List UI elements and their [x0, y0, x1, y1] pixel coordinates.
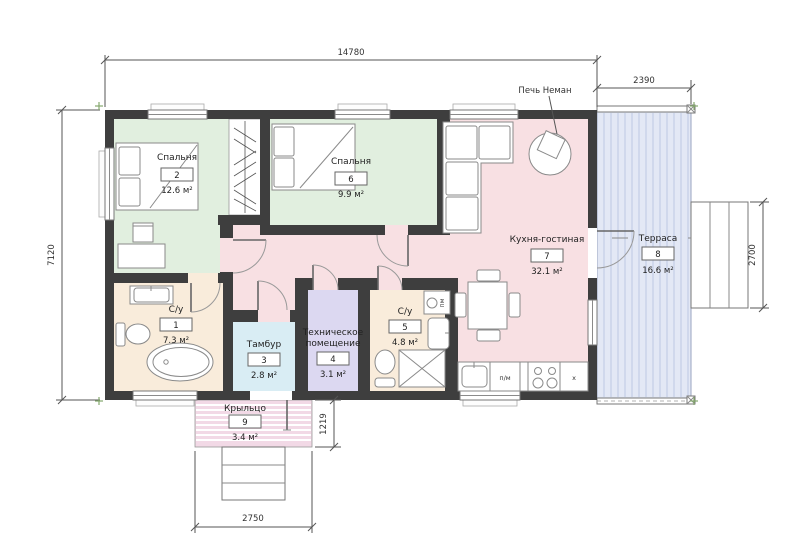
sink-small [428, 318, 449, 349]
svg-text:16.6 м²: 16.6 м² [642, 266, 673, 276]
svg-text:Крыльцо: Крыльцо [224, 404, 266, 414]
window-bedroom2-top [148, 104, 207, 119]
svg-text:14780: 14780 [337, 48, 364, 58]
washing-machine: пм [424, 291, 450, 314]
bathtub [147, 343, 213, 381]
washing-machine-label: пм [438, 298, 446, 307]
dim-terrace-width: 2390 [593, 76, 695, 104]
label-tambour-3: Тамбур 3 2.8 м² [246, 340, 282, 381]
dim-terrace-steps-depth: 2700 [748, 198, 769, 312]
stove-label: Печь Неман [518, 86, 571, 96]
svg-text:7: 7 [544, 252, 549, 262]
window-kitchen-top [450, 104, 518, 119]
dim-overall-width: 14780 [101, 48, 601, 107]
svg-text:Кухня-гостиная: Кухня-гостиная [510, 235, 585, 245]
svg-text:Тамбур: Тамбур [246, 340, 282, 350]
svg-text:4: 4 [330, 355, 335, 365]
dim-overall-depth: 7120 [47, 106, 100, 404]
svg-text:2750: 2750 [242, 514, 264, 524]
svg-text:Техническое: Техническое [302, 328, 364, 338]
window-bedroom6-top [335, 104, 390, 119]
svg-text:7120: 7120 [47, 244, 57, 266]
svg-text:1219: 1219 [319, 413, 329, 435]
floor-plan-drawing: п/м х [0, 0, 800, 552]
svg-text:Спальня: Спальня [331, 157, 371, 167]
wall-wardrobe-bottom [218, 215, 266, 225]
dim-porch-depth: 1219 [315, 396, 341, 451]
toilet [116, 323, 150, 346]
wall-wardrobe-bedroom6 [260, 110, 270, 225]
svg-text:4.8 м²: 4.8 м² [392, 338, 418, 348]
svg-text:2700: 2700 [748, 244, 758, 266]
label-bedroom-2: Спальня 2 12.6 м² [157, 153, 197, 196]
svg-text:Спальня: Спальня [157, 153, 197, 163]
svg-text:5: 5 [402, 323, 407, 333]
svg-text:3.4 м²: 3.4 м² [232, 433, 258, 443]
svg-text:8: 8 [655, 250, 660, 260]
svg-text:12.6 м²: 12.6 м² [161, 186, 192, 196]
kitchen-counter: п/м х [458, 362, 588, 391]
porch-steps [222, 447, 285, 500]
wall-bathroom1-tambour [223, 273, 233, 391]
svg-text:2.8 м²: 2.8 м² [251, 371, 277, 381]
window-kitchen-bottom [460, 391, 520, 406]
svg-text:Терраса: Терраса [638, 234, 677, 244]
terrace-top-rail [597, 106, 691, 112]
svg-text:С/у: С/у [398, 307, 413, 317]
window-bedroom2-left [99, 148, 114, 220]
wall-bedroom6-hall [260, 225, 447, 235]
fridge-label: х [572, 374, 576, 382]
window-kitchen-right [588, 300, 597, 345]
svg-text:32.1 м²: 32.1 м² [531, 267, 562, 277]
svg-text:2390: 2390 [633, 76, 655, 86]
terrace-steps [691, 202, 748, 308]
window-bathroom1-bottom [133, 391, 197, 406]
svg-text:6: 6 [348, 175, 353, 185]
svg-text:9.9 м²: 9.9 м² [338, 190, 364, 200]
svg-text:С/у: С/у [169, 305, 184, 315]
vanity-sink [130, 286, 173, 304]
svg-text:1: 1 [173, 321, 178, 331]
svg-text:2: 2 [174, 171, 179, 181]
svg-text:9: 9 [242, 418, 247, 428]
toilet-small [375, 350, 395, 387]
shower-tray [399, 350, 445, 387]
svg-text:3.1 м²: 3.1 м² [320, 370, 346, 380]
dishwasher-label: п/м [499, 374, 510, 382]
svg-text:3: 3 [261, 356, 266, 366]
svg-text:7.3 м²: 7.3 м² [163, 336, 189, 346]
floor-plan: п/м х [0, 0, 800, 552]
svg-text:помещение: помещение [305, 339, 360, 349]
